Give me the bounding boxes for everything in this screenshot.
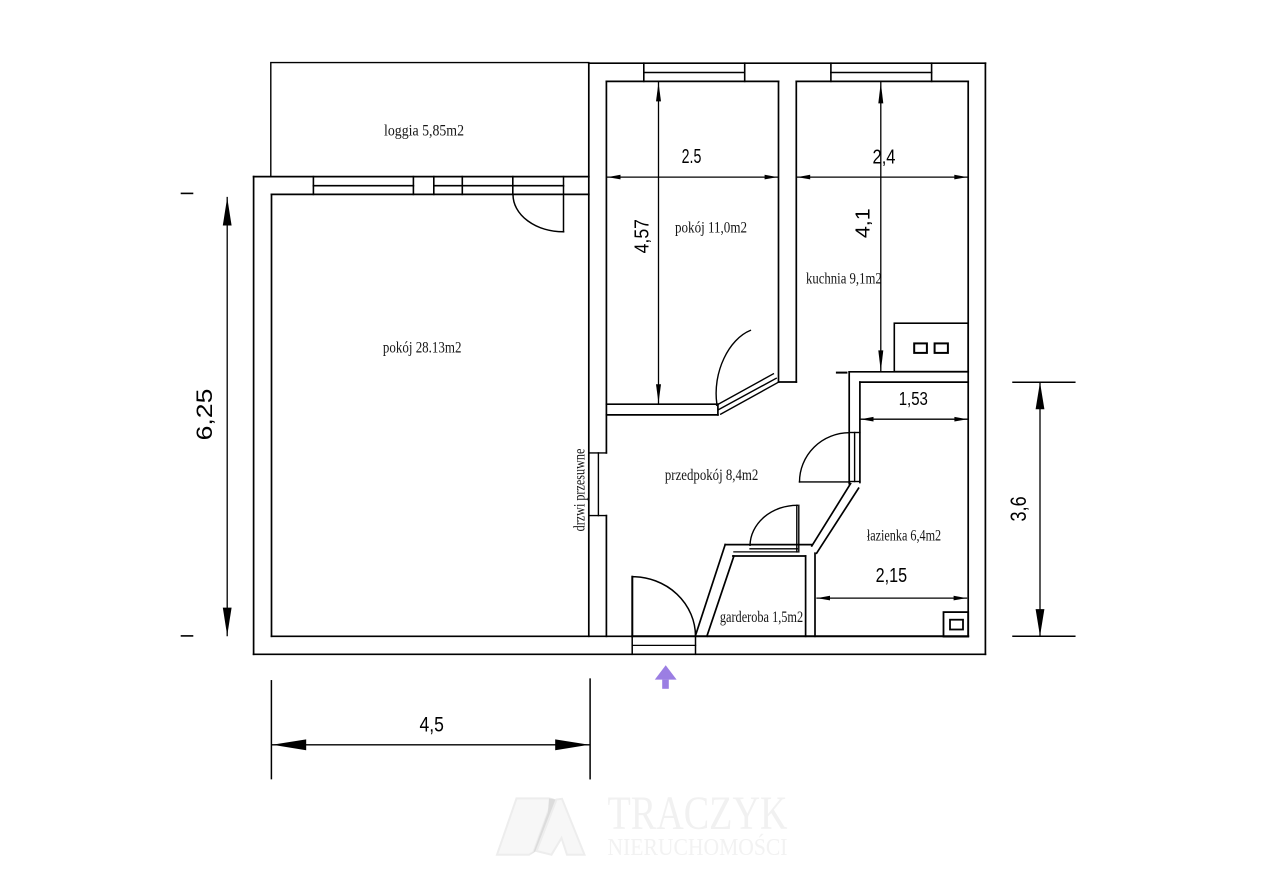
- svg-text:2,4: 2,4: [873, 146, 896, 169]
- svg-text:2.5: 2.5: [682, 145, 702, 168]
- svg-text:loggia 5,85m2: loggia 5,85m2: [384, 120, 464, 139]
- svg-text:NIERUCHOMOŚCI: NIERUCHOMOŚCI: [608, 834, 788, 861]
- svg-text:TRACZYK: TRACZYK: [608, 787, 788, 840]
- svg-text:przedpokój 8,4m2: przedpokój 8,4m2: [665, 465, 758, 484]
- svg-text:4,1: 4,1: [852, 208, 875, 238]
- svg-text:4,57: 4,57: [631, 219, 654, 253]
- svg-text:garderoba 1,5m2: garderoba 1,5m2: [720, 607, 803, 626]
- svg-text:1,53: 1,53: [899, 389, 928, 409]
- svg-text:pokój 28.13m2: pokój 28.13m2: [383, 338, 462, 357]
- svg-text:łazienka 6,4m2: łazienka 6,4m2: [867, 526, 941, 545]
- svg-text:4,5: 4,5: [420, 713, 444, 736]
- svg-text:drzwi przesuwne: drzwi przesuwne: [569, 449, 588, 532]
- svg-text:2,15: 2,15: [876, 565, 908, 587]
- svg-text:3,6: 3,6: [1006, 496, 1031, 521]
- svg-text:6,25: 6,25: [192, 389, 217, 441]
- svg-text:kuchnia 9,1m2: kuchnia 9,1m2: [806, 269, 882, 288]
- svg-text:pokój 11,0m2: pokój 11,0m2: [675, 217, 747, 236]
